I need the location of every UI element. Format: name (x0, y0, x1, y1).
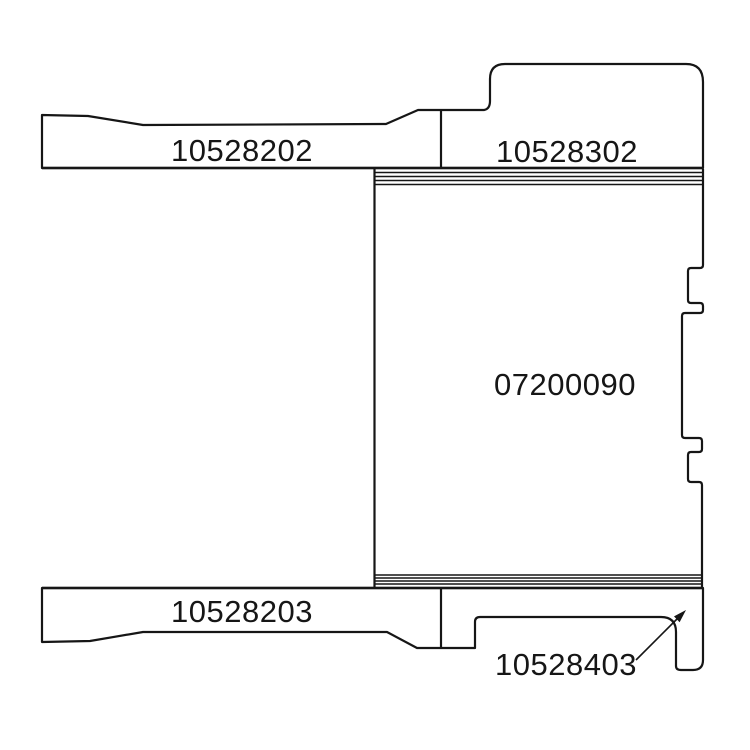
center-body-right-profile (682, 169, 703, 588)
part-label-bottom-left: 10528203 (171, 594, 313, 629)
parts-diagram: 10528202 10528302 07200090 10528203 1052… (0, 0, 750, 750)
leader-line (636, 619, 677, 660)
lower-ring-band (375, 575, 704, 584)
upper-ring-band (375, 173, 704, 185)
part-label-bottom-right: 10528403 (495, 647, 637, 682)
cross-section-drawing: 10528202 10528302 07200090 10528203 1052… (0, 0, 750, 750)
part-label-top-right: 10528302 (496, 134, 638, 169)
part-label-top-left: 10528202 (171, 133, 313, 168)
part-label-center: 07200090 (494, 367, 636, 402)
